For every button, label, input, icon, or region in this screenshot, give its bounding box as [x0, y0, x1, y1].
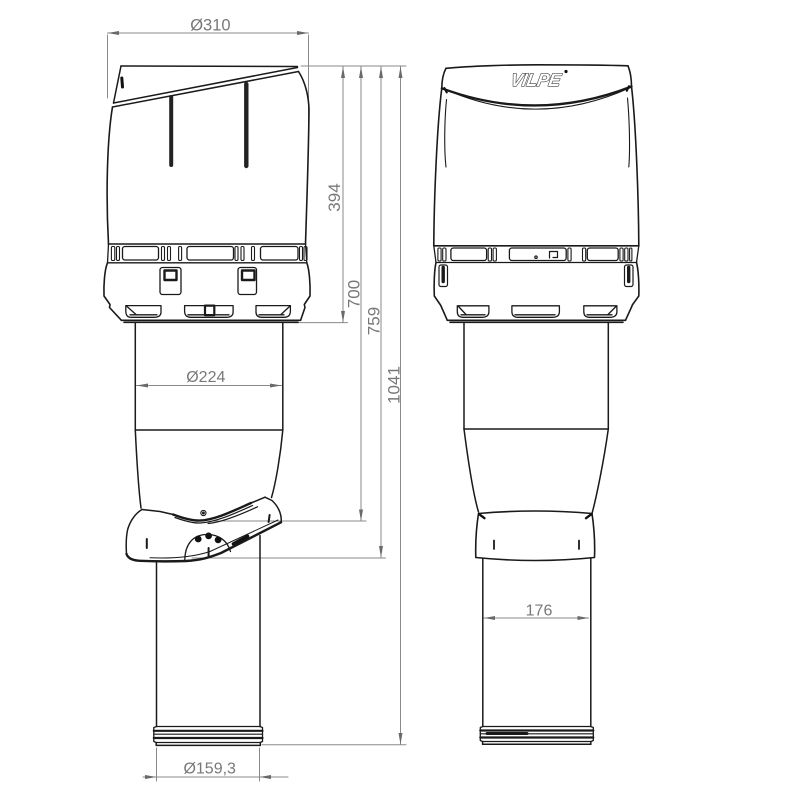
svg-text:Ø159,3: Ø159,3	[183, 761, 236, 778]
svg-text:176: 176	[526, 603, 553, 620]
svg-text:Ø310: Ø310	[190, 17, 230, 35]
svg-text:VILPE: VILPE	[509, 70, 563, 90]
svg-text:1041: 1041	[385, 366, 404, 404]
svg-text:700: 700	[345, 280, 364, 308]
svg-text:394: 394	[325, 183, 344, 211]
svg-text:759: 759	[365, 307, 384, 335]
svg-text:Ø224: Ø224	[186, 369, 225, 386]
